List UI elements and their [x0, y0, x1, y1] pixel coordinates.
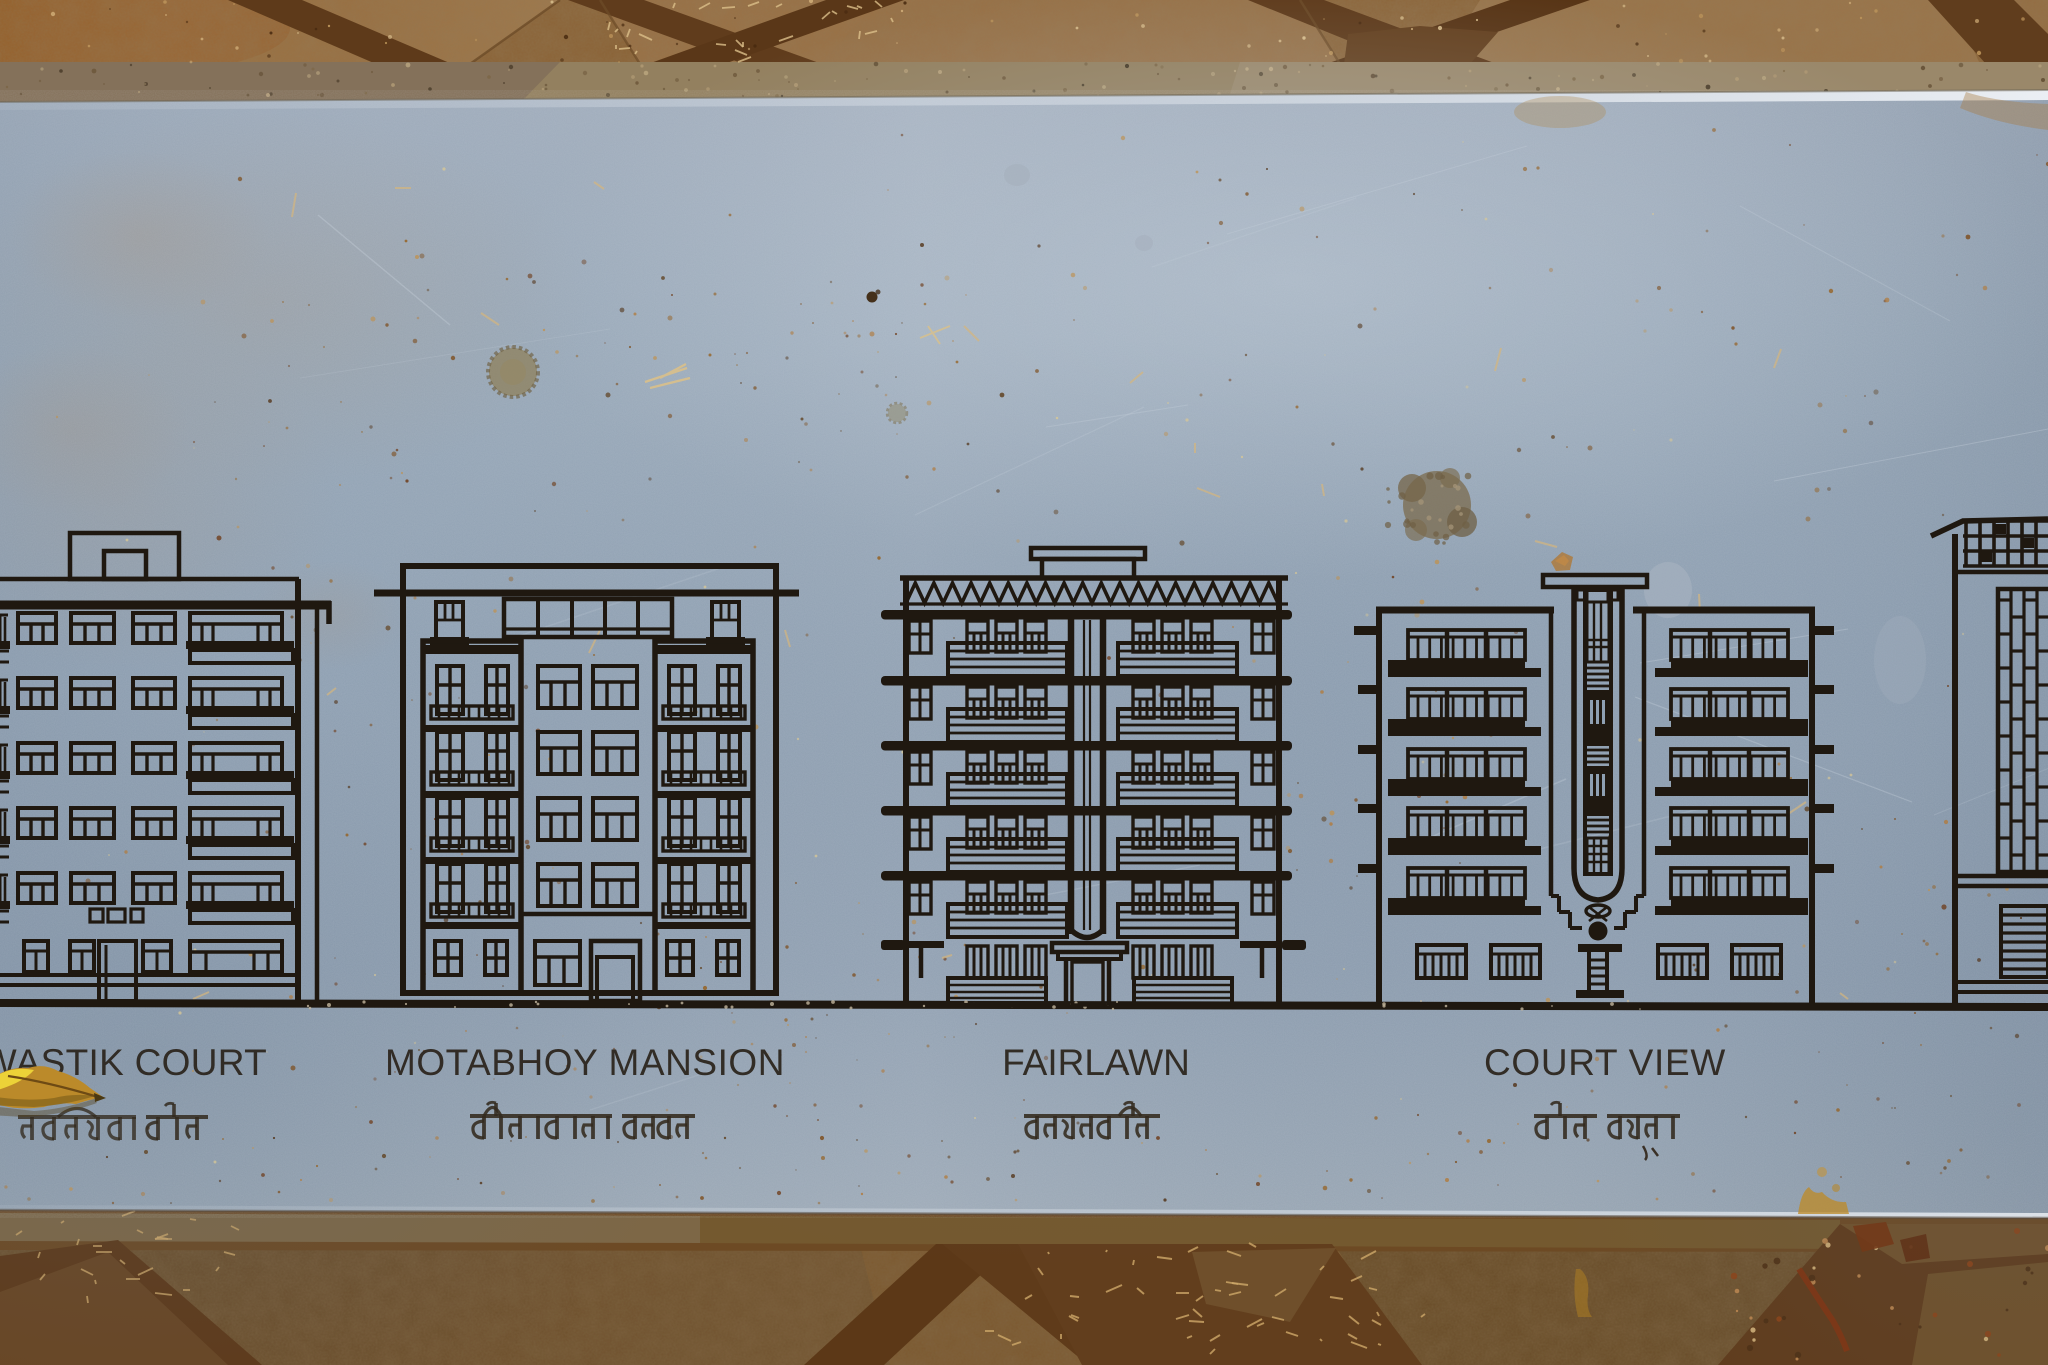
svg-text:FAIRLAWN: FAIRLAWN: [1002, 1042, 1190, 1083]
svg-text:MOTABHOY MANSION: MOTABHOY MANSION: [385, 1042, 785, 1083]
svg-text:COURT VIEW: COURT VIEW: [1484, 1042, 1726, 1083]
